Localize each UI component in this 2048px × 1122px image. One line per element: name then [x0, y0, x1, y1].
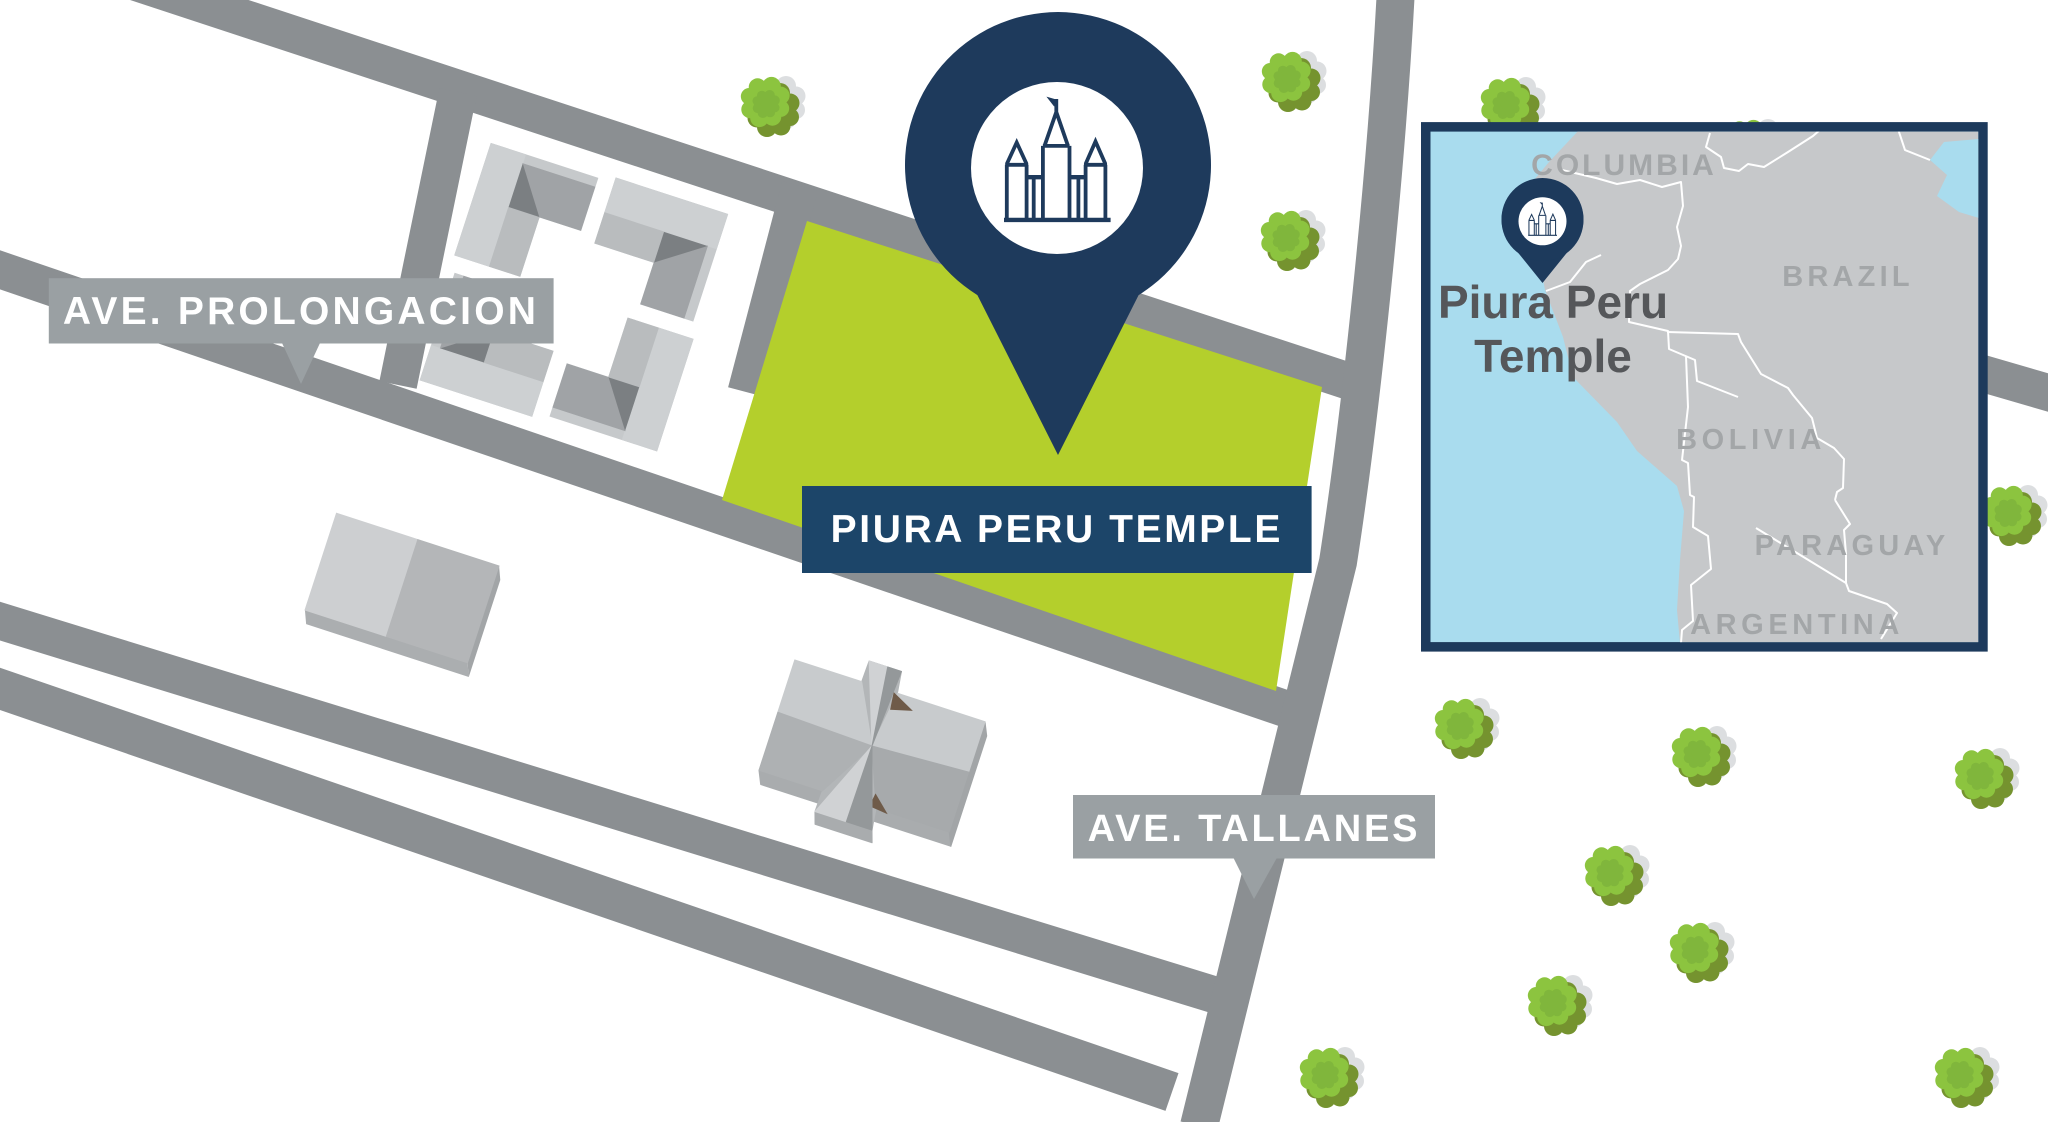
- svg-text:Temple: Temple: [1474, 330, 1632, 382]
- svg-text:COLUMBIA: COLUMBIA: [1531, 149, 1717, 182]
- svg-text:PIURA PERU TEMPLE: PIURA PERU TEMPLE: [831, 508, 1283, 551]
- svg-text:BOLIVIA: BOLIVIA: [1676, 424, 1826, 456]
- svg-text:Piura Peru: Piura Peru: [1438, 276, 1668, 328]
- svg-text:BRAZIL: BRAZIL: [1782, 261, 1914, 293]
- svg-text:PARAGUAY: PARAGUAY: [1755, 530, 1950, 562]
- svg-text:AVE. TALLANES: AVE. TALLANES: [1088, 808, 1421, 850]
- svg-text:ARGENTINA: ARGENTINA: [1690, 609, 1904, 641]
- svg-text:AVE. PROLONGACION: AVE. PROLONGACION: [63, 290, 539, 333]
